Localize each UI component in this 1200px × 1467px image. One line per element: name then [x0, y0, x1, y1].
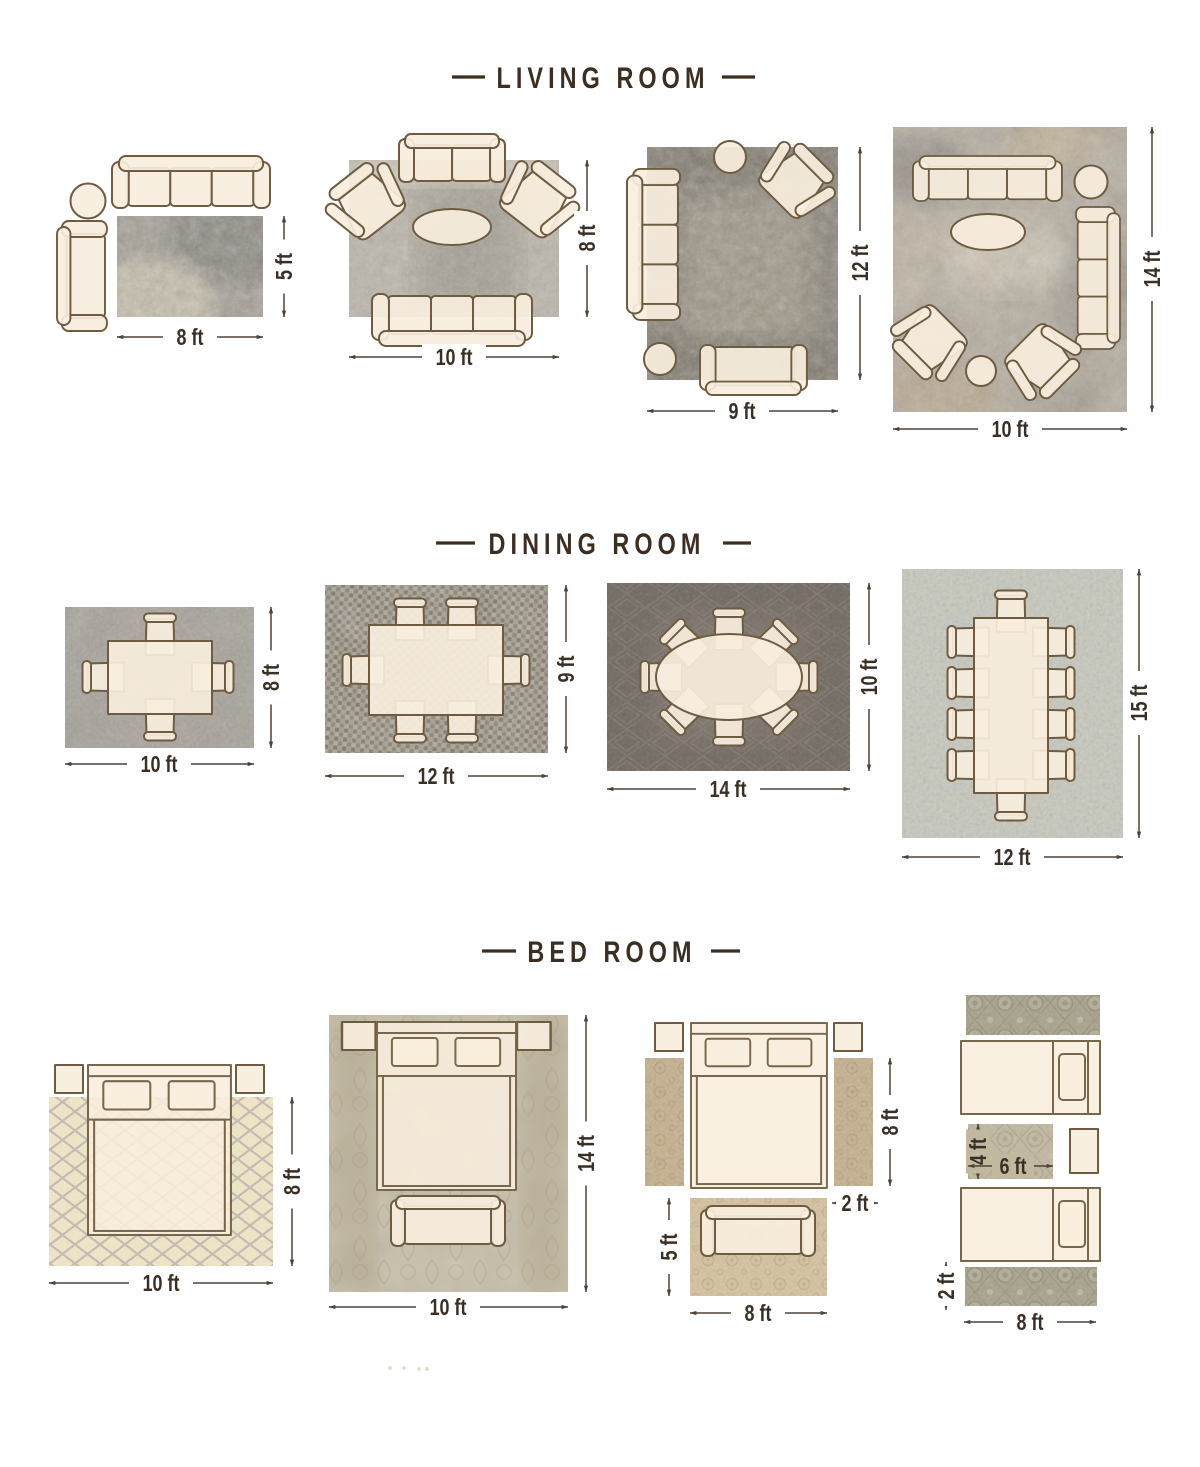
svg-text:8 ft: 8 ft: [575, 224, 601, 251]
svg-text:9 ft: 9 ft: [729, 399, 756, 425]
svg-text:DINING ROOM: DINING ROOM: [489, 527, 706, 560]
svg-text:9 ft: 9 ft: [554, 655, 580, 682]
svg-text:8 ft: 8 ft: [745, 1301, 772, 1327]
svg-text:10 ft: 10 ft: [857, 658, 883, 695]
svg-text:12 ft: 12 ft: [994, 845, 1031, 871]
svg-text:8 ft: 8 ft: [878, 1108, 904, 1135]
svg-text:LIVING ROOM: LIVING ROOM: [496, 61, 709, 94]
svg-text:10 ft: 10 ft: [992, 417, 1029, 443]
svg-text:BED ROOM: BED ROOM: [527, 935, 696, 968]
svg-text:14 ft: 14 ft: [574, 1135, 600, 1172]
svg-text:14 ft: 14 ft: [1140, 250, 1166, 287]
svg-text:10 ft: 10 ft: [141, 752, 178, 778]
svg-text:8 ft: 8 ft: [280, 1168, 306, 1195]
svg-text:8 ft: 8 ft: [177, 325, 204, 351]
svg-text:14 ft: 14 ft: [710, 777, 747, 803]
svg-text:2 ft: 2 ft: [934, 1272, 960, 1299]
svg-text:12 ft: 12 ft: [418, 764, 455, 790]
svg-text:6 ft: 6 ft: [1000, 1154, 1027, 1180]
svg-text:12 ft: 12 ft: [848, 244, 874, 281]
svg-text:4 ft: 4 ft: [966, 1138, 992, 1165]
svg-text:10 ft: 10 ft: [436, 345, 473, 371]
svg-text:2 ft: 2 ft: [842, 1191, 869, 1217]
svg-text:5 ft: 5 ft: [657, 1233, 683, 1260]
svg-text:8 ft: 8 ft: [1017, 1310, 1044, 1336]
svg-text:8 ft: 8 ft: [259, 664, 285, 691]
svg-text:15 ft: 15 ft: [1127, 684, 1153, 721]
svg-text:5 ft: 5 ft: [272, 253, 298, 280]
svg-text:10 ft: 10 ft: [430, 1295, 467, 1321]
svg-text:10 ft: 10 ft: [143, 1271, 180, 1297]
